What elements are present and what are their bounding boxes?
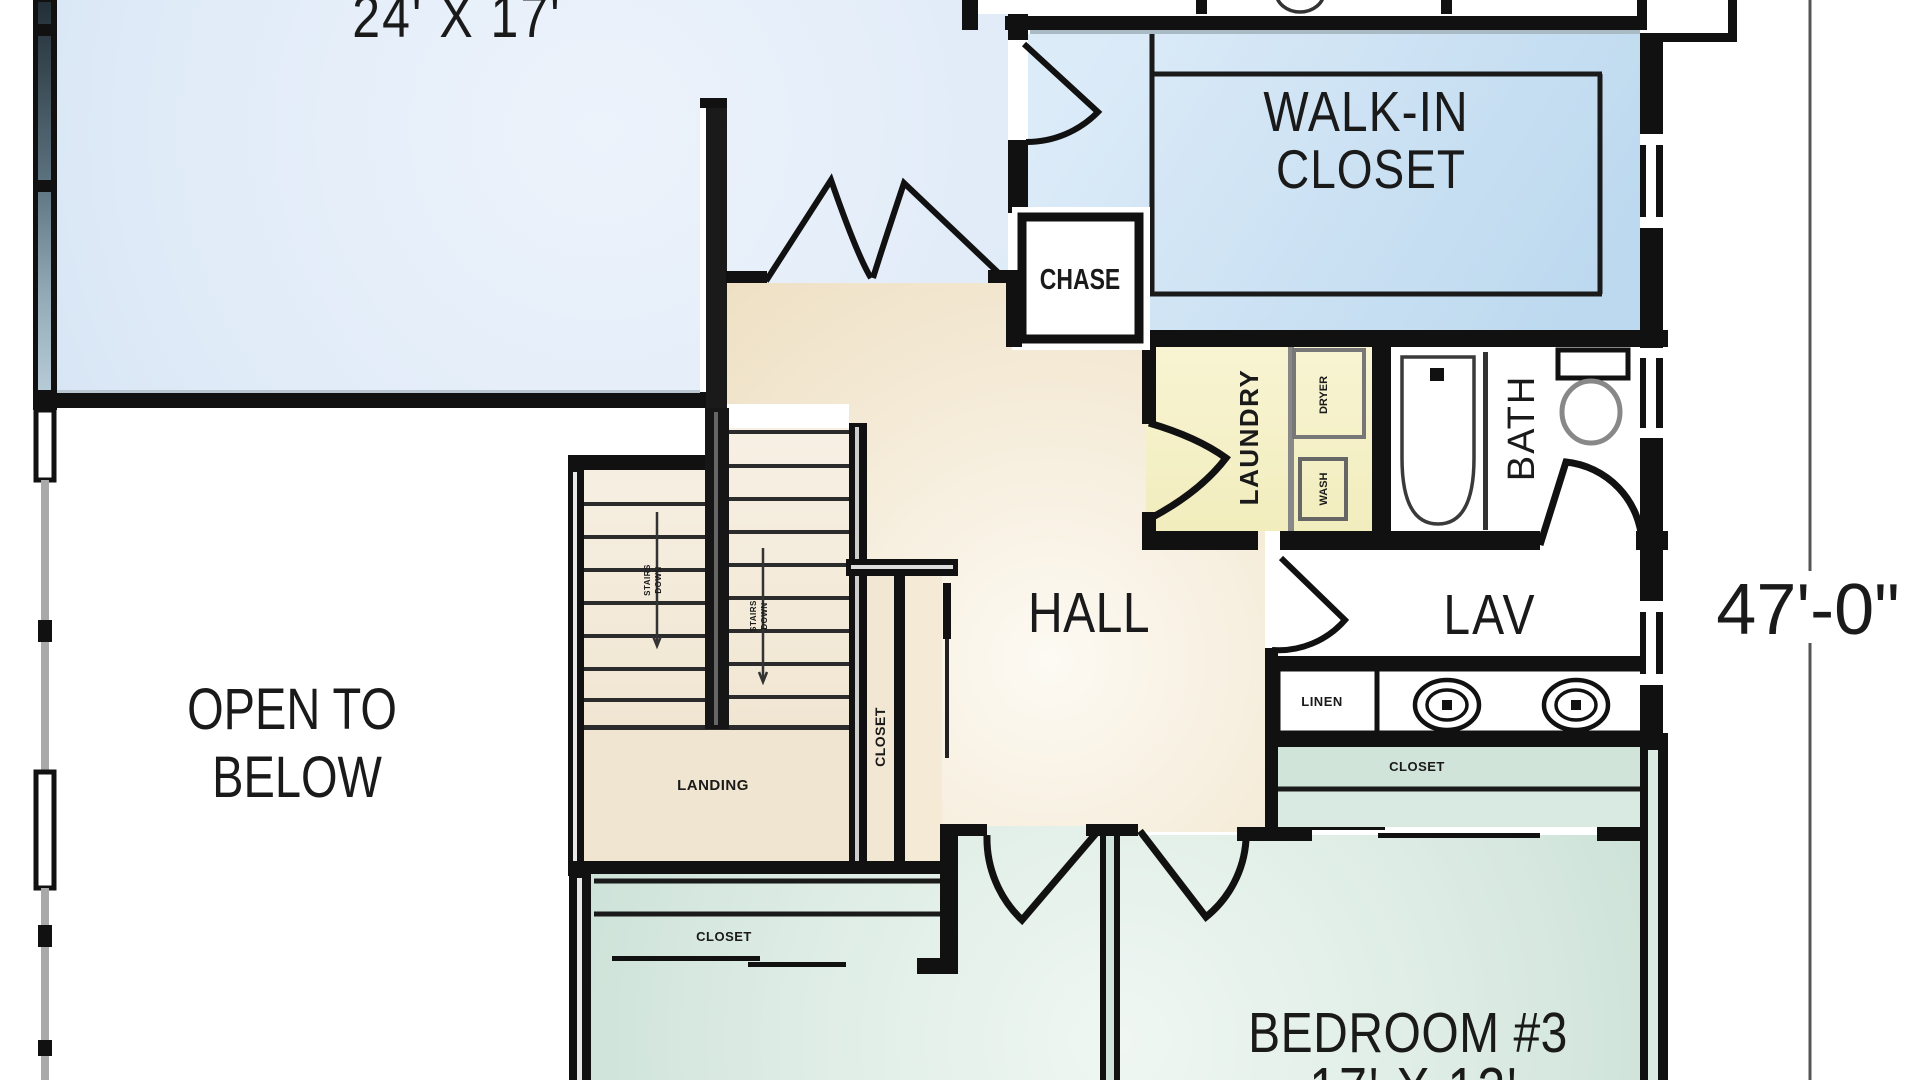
svg-text:HALL: HALL xyxy=(1028,581,1150,645)
svg-text:DRYER: DRYER xyxy=(1318,376,1330,414)
svg-text:BATH: BATH xyxy=(1501,375,1543,482)
svg-text:STAIRS: STAIRS xyxy=(643,564,652,596)
svg-text:17' X 12': 17' X 12' xyxy=(1309,1055,1518,1080)
svg-text:BELOW: BELOW xyxy=(212,745,382,810)
svg-text:24' X 17': 24' X 17' xyxy=(352,0,561,50)
svg-text:DOWN: DOWN xyxy=(654,566,663,593)
svg-text:OPEN TO: OPEN TO xyxy=(187,677,397,742)
svg-text:WALK-IN: WALK-IN xyxy=(1263,80,1468,144)
svg-text:LINEN: LINEN xyxy=(1301,694,1343,709)
svg-text:CLOSET: CLOSET xyxy=(1389,759,1445,774)
svg-text:STAIRS: STAIRS xyxy=(749,600,758,632)
svg-text:LAUNDRY: LAUNDRY xyxy=(1234,369,1264,506)
svg-text:LAV: LAV xyxy=(1443,583,1536,647)
svg-text:47'-0": 47'-0" xyxy=(1716,570,1899,650)
svg-text:WASH: WASH xyxy=(1318,472,1330,505)
svg-text:CLOSET: CLOSET xyxy=(1276,138,1466,199)
svg-text:CHASE: CHASE xyxy=(1040,262,1120,295)
svg-text:CLOSET: CLOSET xyxy=(872,707,888,767)
svg-text:LANDING: LANDING xyxy=(677,777,749,794)
svg-text:DOWN: DOWN xyxy=(760,602,769,629)
svg-text:CLOSET: CLOSET xyxy=(696,929,752,944)
